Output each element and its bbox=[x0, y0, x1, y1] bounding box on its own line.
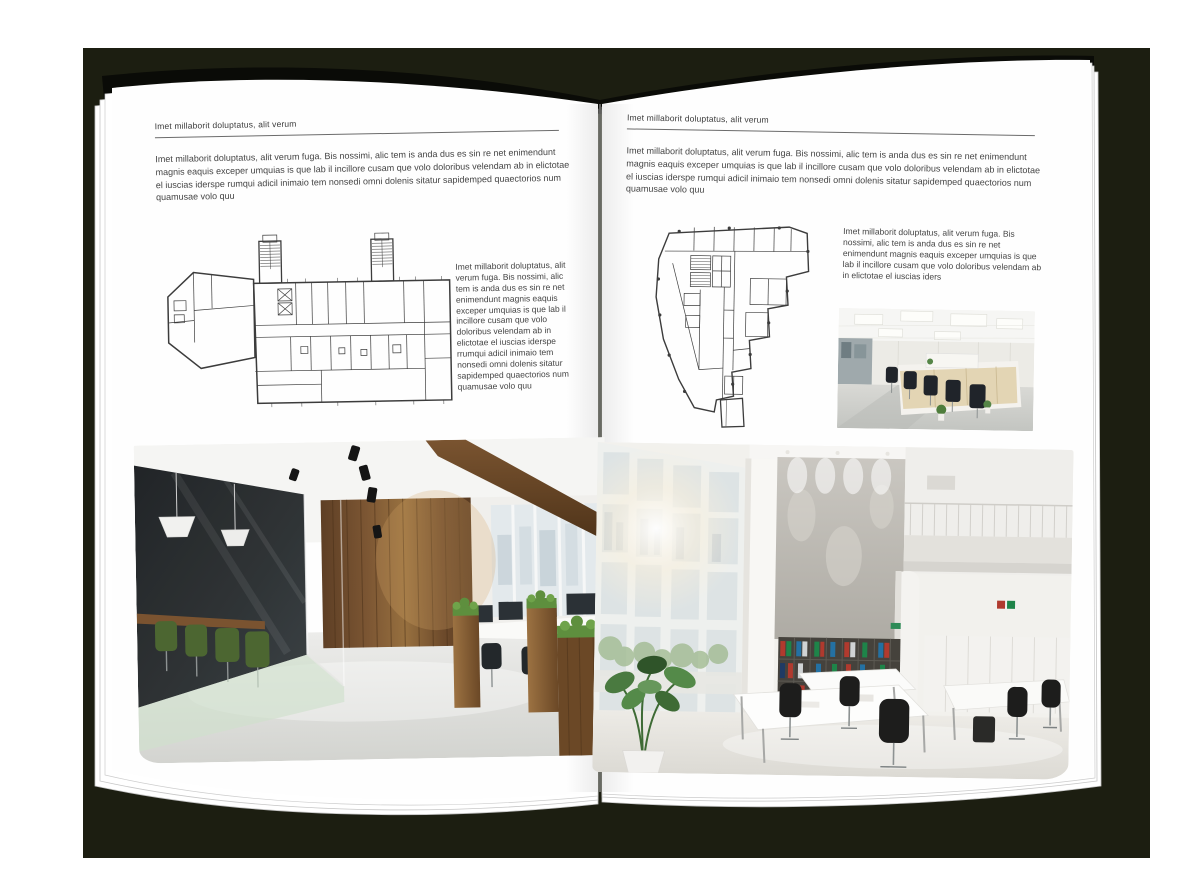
left-page-title: Imet millaborit doluptatus, alit verum bbox=[155, 119, 297, 132]
right-side-paragraph: Imet millaborit doluptatus, alit verum f… bbox=[842, 226, 1043, 284]
right-page-title: Imet millaborit doluptatus, alit verum bbox=[627, 112, 769, 124]
left-page: Imet millaborit doluptatus, alit verum I… bbox=[112, 77, 611, 792]
concrete-wall bbox=[774, 457, 905, 641]
mezzanine bbox=[904, 447, 1074, 576]
floor-plan-left bbox=[159, 226, 460, 421]
left-side-paragraph: Imet millaborit doluptatus, alit verum f… bbox=[455, 260, 575, 393]
left-intro-paragraph: Imet millaborit doluptatus, alit verum f… bbox=[155, 146, 570, 205]
right-intro-paragraph: Imet millaborit doluptatus, alit verum f… bbox=[626, 144, 1041, 202]
right-header-rule bbox=[627, 128, 1035, 136]
office-photo-left bbox=[134, 437, 611, 764]
brochure-mockup: Imet millaborit doluptatus, alit verum I… bbox=[0, 0, 1200, 891]
right-page: Imet millaborit doluptatus, alit verum I… bbox=[590, 62, 1094, 800]
office-photo-right bbox=[592, 442, 1073, 780]
left-header-rule bbox=[155, 130, 559, 138]
office-photo-small bbox=[837, 308, 1035, 431]
floor-plan-right bbox=[636, 219, 831, 430]
